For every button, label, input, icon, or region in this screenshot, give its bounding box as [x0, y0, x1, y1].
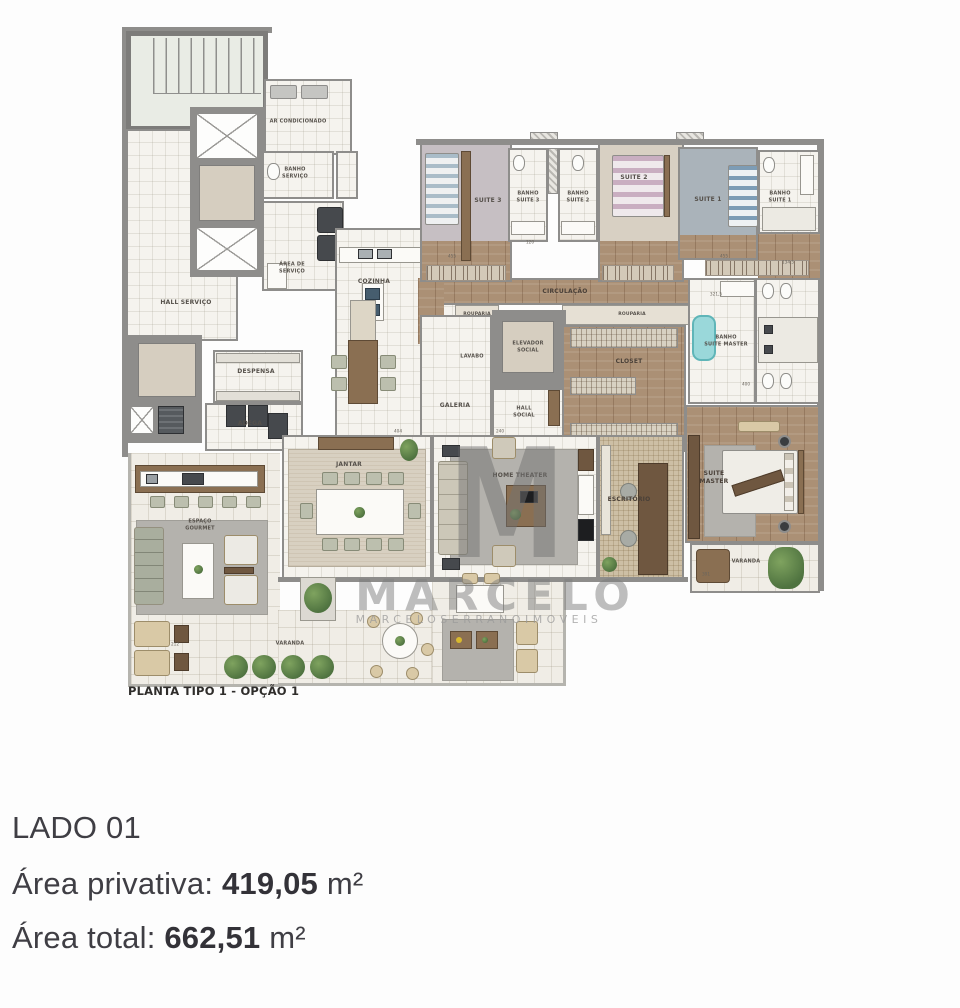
sink-icon [377, 249, 392, 259]
lounge-chair [134, 650, 170, 676]
label-escritorio: ESCRITÓRIO [608, 496, 651, 504]
side-table [174, 625, 189, 643]
plan-caption: PLANTA TIPO 1 - OPÇÃO 1 [128, 686, 299, 698]
dining-chair [344, 538, 360, 551]
label-banho-suite3: BANHO SUITE 3 [517, 190, 540, 204]
bar-stool [222, 496, 237, 508]
bed-suite3 [425, 153, 459, 225]
label-espaco-gourmet: ESPAÇO GOURMET [185, 518, 214, 532]
dimension-label: 404 [394, 430, 402, 434]
dining-chair [322, 472, 338, 485]
wall-unit [578, 475, 594, 515]
dining-chair [388, 538, 404, 551]
elevator-shaft-icon [196, 227, 258, 271]
floor-plan: AR CONDICIONADO BANHO SERVIÇO HALL SERVI… [120, 25, 825, 703]
elevator-shaft-icon [196, 113, 258, 159]
bidet-icon [780, 283, 792, 299]
label-jantar: JANTAR [336, 461, 362, 469]
private-area-line: Área privativa: 419,05 m² [12, 866, 363, 902]
gourmet-sofa [134, 527, 164, 605]
dining-chair [388, 472, 404, 485]
watermark-monogram: M [448, 433, 531, 577]
dining-chair [408, 503, 421, 519]
office-chair [620, 530, 637, 547]
area-unit: m² [269, 920, 306, 955]
dining-chair [366, 472, 382, 485]
duct [548, 148, 558, 194]
stool [380, 377, 396, 391]
kitchen-island [348, 340, 378, 404]
stool [380, 355, 396, 369]
centerpiece [395, 636, 405, 646]
toilet-icon [762, 373, 774, 389]
label-suite2: SUITE 2 [620, 174, 647, 182]
stall-divider [754, 278, 757, 404]
plant-icon [602, 557, 617, 572]
decor-item [456, 637, 462, 643]
elevator-cab [138, 343, 196, 397]
pouf-icon [778, 520, 791, 533]
tray-table [224, 567, 254, 574]
label-despensa: DESPENSA [237, 368, 274, 376]
decor-plant [482, 637, 488, 643]
dining-chair [300, 503, 313, 519]
total-area-line: Área total: 662,51 m² [12, 920, 306, 956]
bed-pillows [784, 453, 794, 511]
ac-unit-icon [270, 85, 297, 99]
stair-treads-icon [153, 38, 261, 94]
pantry-shelf [216, 353, 300, 363]
label-varanda-master: VARANDA [732, 559, 761, 566]
total-area-value: 662,51 [164, 920, 260, 955]
label-suite-master: SUITE MASTER [700, 470, 729, 486]
shower-head-icon [764, 325, 773, 334]
terrace-chair [421, 643, 434, 656]
headboard [664, 155, 670, 217]
service-elevator-cab [199, 165, 255, 221]
ac-niche [530, 132, 558, 140]
shelf [601, 445, 611, 535]
label-banho-suite-master: BANHO SUITE MASTER [704, 334, 748, 348]
label-adega: ADEGA [238, 420, 262, 428]
wall-unit [578, 449, 594, 471]
label-suite3: SUITE 3 [474, 197, 501, 205]
bush-icon [281, 655, 305, 679]
label-banho-servico: BANHO SERVIÇO [282, 166, 308, 180]
toilet-icon [267, 163, 280, 180]
label-area-servico: ÁREA DE SERVIÇO [279, 261, 305, 275]
label-banho-suite2: BANHO SUITE 2 [567, 190, 590, 204]
palm-icon [304, 583, 332, 613]
headboard [798, 450, 804, 514]
dimension-label: 134,5 [782, 261, 794, 265]
toilet-icon [763, 157, 775, 173]
rug [602, 265, 674, 281]
plant-icon [768, 547, 804, 589]
tv-panel [688, 435, 700, 539]
shower-head-icon [764, 345, 773, 354]
sink-icon [358, 249, 373, 259]
label-circulacao: CIRCULAÇÃO [542, 288, 587, 296]
total-area-label: Área total: [12, 920, 156, 955]
dimension-label: 455 [448, 255, 456, 259]
wall-unit [578, 519, 594, 541]
dining-chair [322, 538, 338, 551]
ac-niche [676, 132, 704, 140]
dimension-label: 455 [720, 255, 728, 259]
armchair [224, 535, 258, 565]
label-elevador-social: ELEVADOR SOCIAL [512, 340, 543, 354]
private-area-value: 419,05 [222, 866, 318, 901]
bar-stool [150, 496, 165, 508]
stool [331, 355, 347, 369]
dimension-label: 321,5 [710, 293, 722, 297]
dining-chair [366, 538, 382, 551]
shower [762, 207, 816, 231]
label-cozinha: COZINHA [358, 278, 390, 286]
label-closet: CLOSET [616, 358, 643, 366]
bush-icon [252, 655, 276, 679]
label-rouparia1: ROUPARIA [463, 312, 491, 318]
shower [758, 317, 818, 363]
watermark-brand-sub: MARCELOSERRANOIMOVEIS [329, 613, 629, 626]
label-ar-condicionado: AR CONDICIONADO [270, 119, 327, 126]
bar-sink [146, 474, 158, 484]
double-vanity [720, 281, 756, 297]
area-unit: m² [327, 866, 364, 901]
bush-icon [224, 655, 248, 679]
dimension-label: 120 [526, 241, 534, 245]
pouf-icon [778, 435, 791, 448]
bar-stool [246, 496, 261, 508]
bidet-icon [780, 373, 792, 389]
armchair [516, 649, 538, 673]
label-varanda: VARANDA [276, 641, 305, 648]
stool [331, 377, 347, 391]
dimension-label: 391 [702, 573, 710, 577]
pantry-shelf [216, 391, 300, 401]
label-hall-servico: HALL SERVIÇO [160, 299, 211, 307]
room-store [336, 151, 358, 199]
private-area-label: Área privativa: [12, 866, 213, 901]
island-counter [350, 300, 376, 342]
terrace-chair [406, 667, 419, 680]
vanity [800, 155, 814, 195]
rug [442, 619, 514, 681]
desk [638, 463, 668, 575]
label-suite1: SUITE 1 [694, 196, 721, 204]
ac-unit-icon [301, 85, 328, 99]
bar-stool [174, 496, 189, 508]
wardrobe-icon [570, 328, 678, 348]
toilet-icon [762, 283, 774, 299]
vanity [511, 221, 545, 235]
label-rouparia2: ROUPARIA [618, 312, 646, 318]
dining-chair [344, 472, 360, 485]
bed-suite1 [728, 165, 758, 227]
dimension-label: 400 [742, 383, 750, 387]
cooktop-icon [365, 288, 380, 300]
outdoor-sofa [696, 549, 730, 583]
armchair [224, 575, 258, 605]
terrace-chair [370, 665, 383, 678]
toilet-icon [513, 155, 525, 171]
wardrobe-panel [461, 151, 471, 261]
label-galeria: GALERIA [440, 402, 470, 410]
sideboard [318, 437, 394, 450]
wardrobe-icon [570, 377, 636, 395]
toilet-icon [572, 155, 584, 171]
label-banho-suite1: BANHO SUITE 1 [769, 190, 792, 204]
cabinet-icon [158, 406, 184, 434]
bed-suite2 [612, 155, 664, 217]
plant-icon [400, 439, 418, 461]
decor-plant [194, 565, 203, 574]
side-table [174, 653, 189, 671]
lounge-chair [134, 621, 170, 647]
page: { "plan": { "caption": "PLANTA TIPO 1 - … [0, 0, 960, 1008]
bar-stool [198, 496, 213, 508]
label-lavabo: LAVABO [460, 354, 483, 361]
bar-appliance [182, 473, 204, 485]
dimension-label: 212 [171, 643, 179, 647]
elevator-shaft-icon [130, 406, 154, 434]
bush-icon [310, 655, 334, 679]
bench [738, 421, 780, 432]
centerpiece [354, 507, 365, 518]
rug [426, 265, 506, 281]
side-title: LADO 01 [12, 810, 141, 846]
vanity [561, 221, 595, 235]
